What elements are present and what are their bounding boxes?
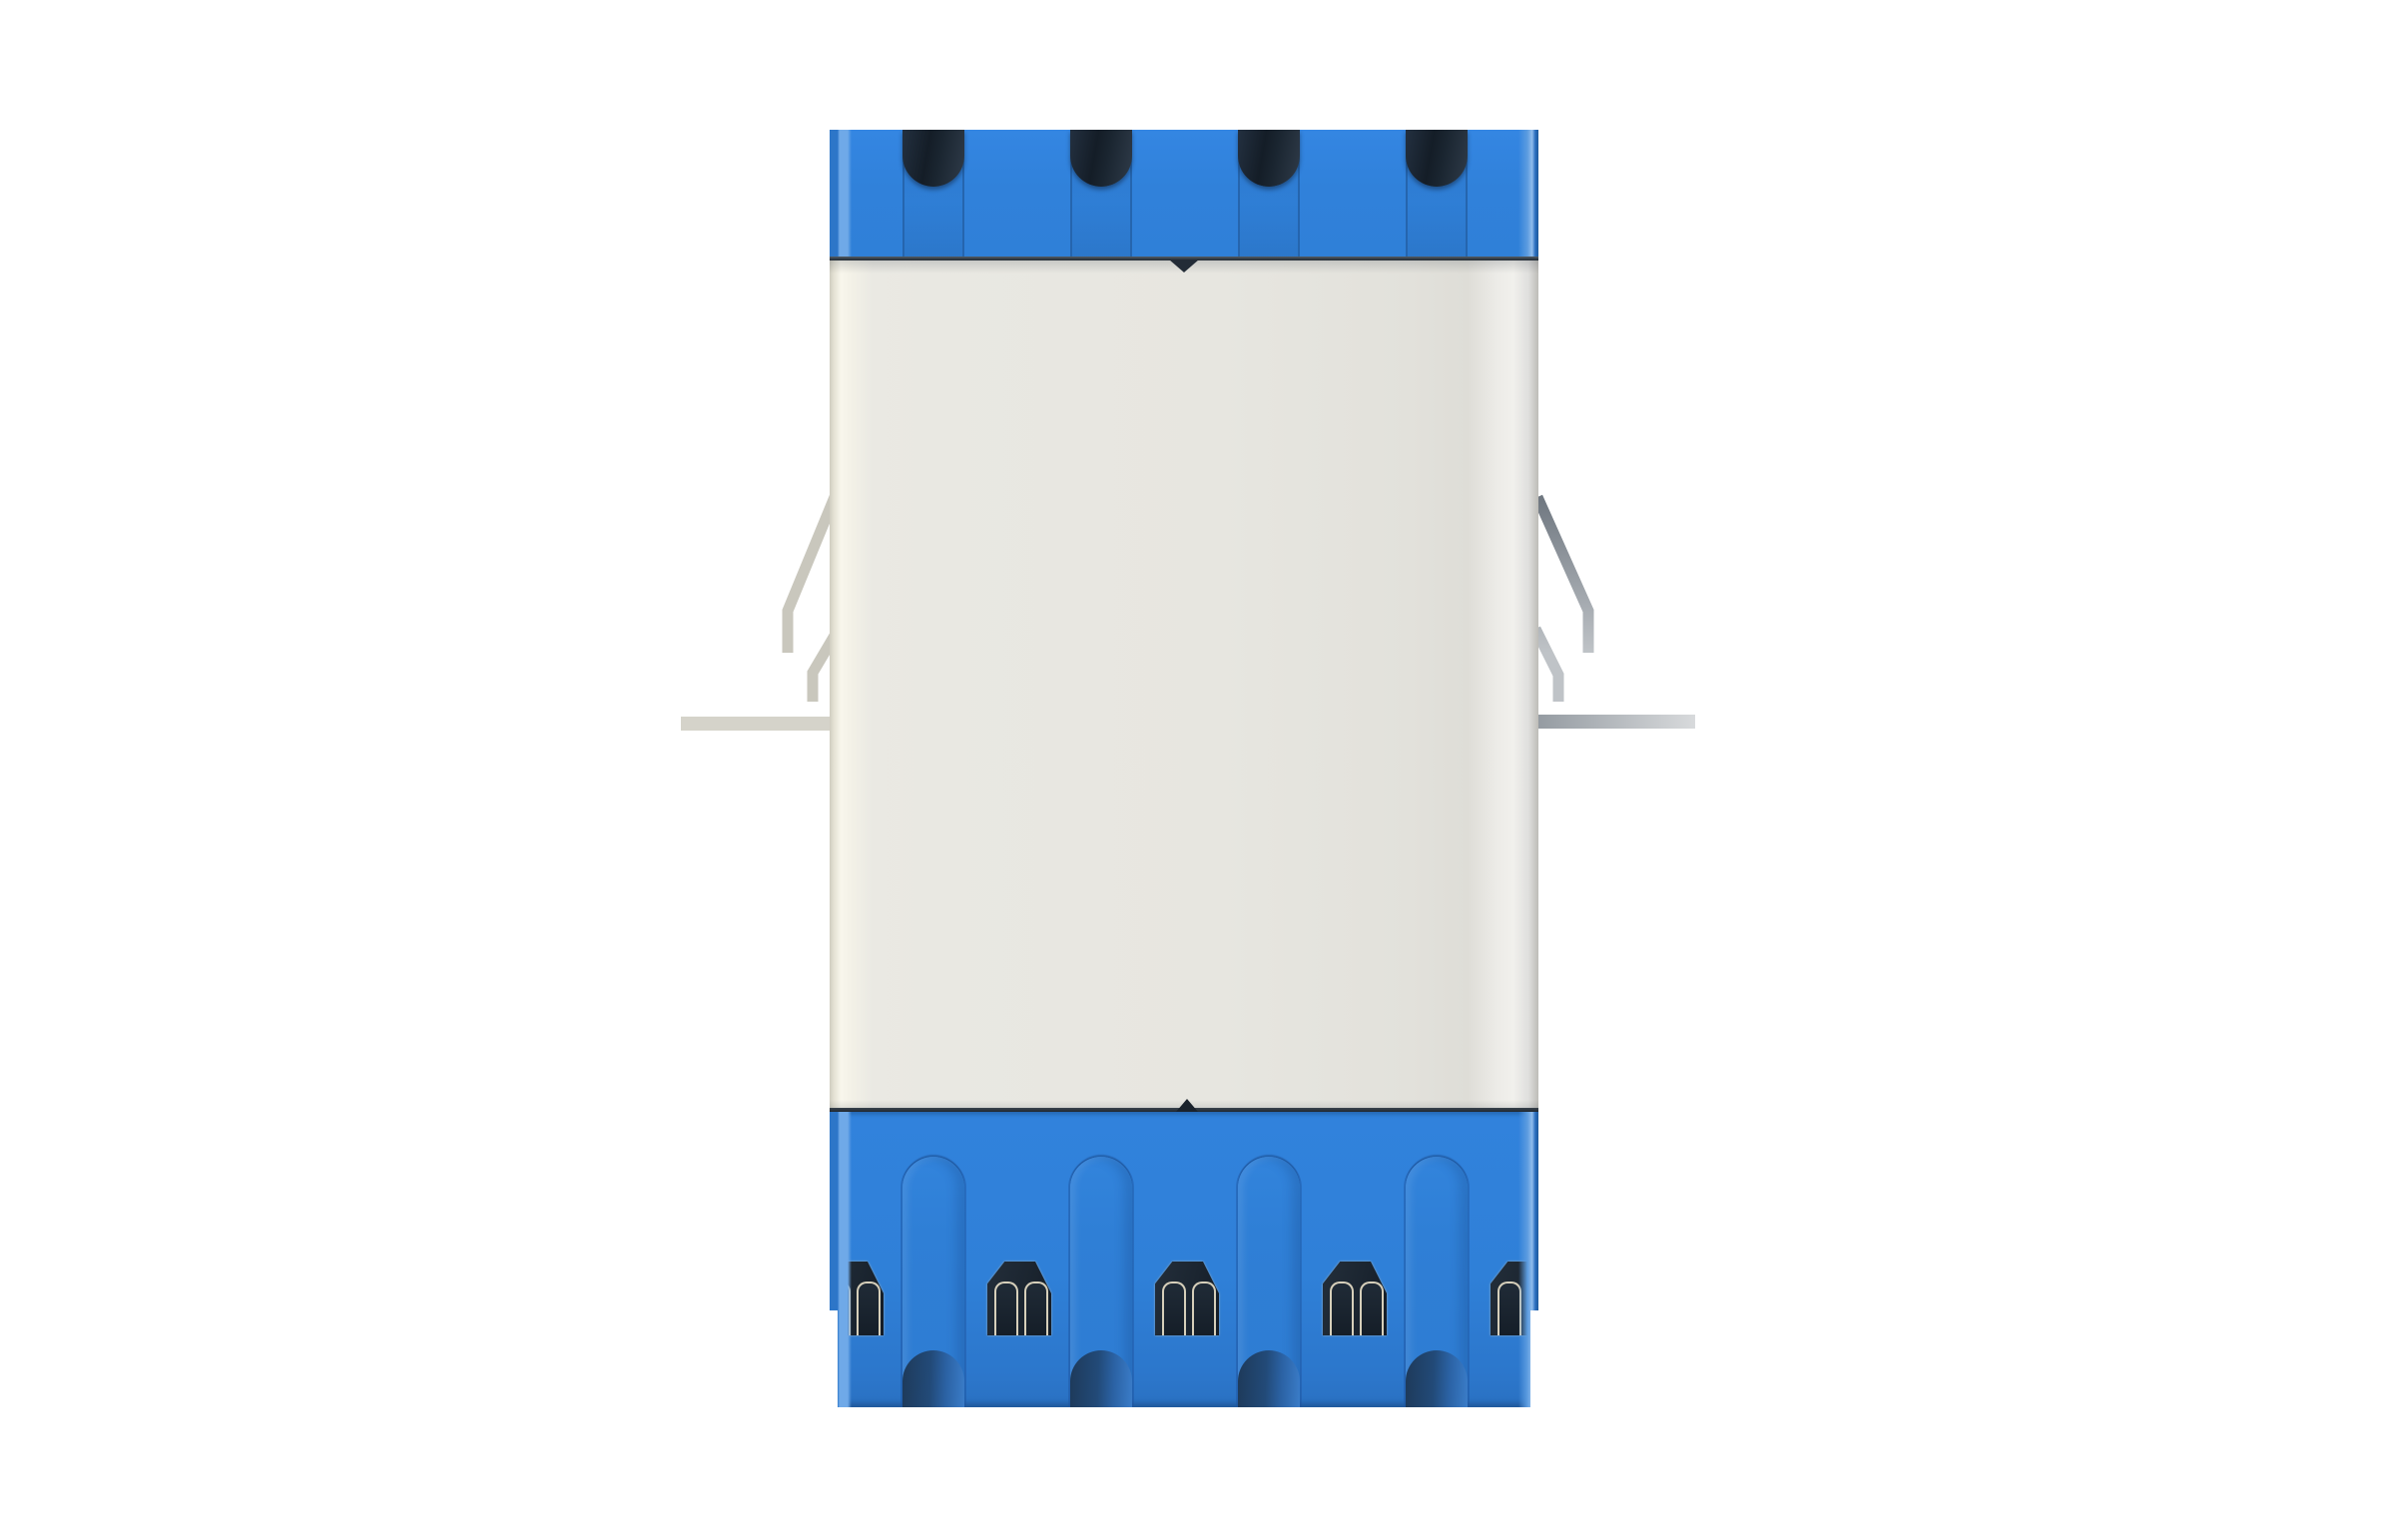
bottom-right-step-cover [1530,1310,1538,1409]
right-lower-lead [1535,629,1558,702]
contact-finger-1 [994,1282,1018,1335]
bottom-arch-4 [1406,1350,1468,1407]
top-cap-left-bevel [830,130,852,259]
contact-finger-2 [1024,1282,1048,1335]
top-cap-right-bevel [1518,130,1538,259]
top-center-notch [1169,259,1199,272]
contact-claw-2 [987,1262,1051,1335]
bottom-center-notch [1176,1099,1198,1112]
bottom-left-step-cover [830,1310,838,1409]
contact-claw-3 [1155,1262,1219,1335]
contact-finger-1 [1330,1282,1354,1335]
connector-bottom-cap [830,1112,1538,1407]
connector-body [830,259,1538,1112]
contact-finger-2 [857,1282,881,1335]
contact-claw-4 [1323,1262,1387,1335]
contact-finger-1 [1162,1282,1186,1335]
right-upper-lead [1537,497,1588,653]
bottom-arch-1 [902,1350,964,1407]
contact-finger-2 [1360,1282,1384,1335]
bottom-arch-3 [1238,1350,1300,1407]
contact-finger-2 [1192,1282,1216,1335]
connector-top-cap [830,130,1538,259]
left-upper-lead [788,497,835,653]
product-render-canvas [0,0,2396,1540]
bottom-arch-2 [1070,1350,1132,1407]
